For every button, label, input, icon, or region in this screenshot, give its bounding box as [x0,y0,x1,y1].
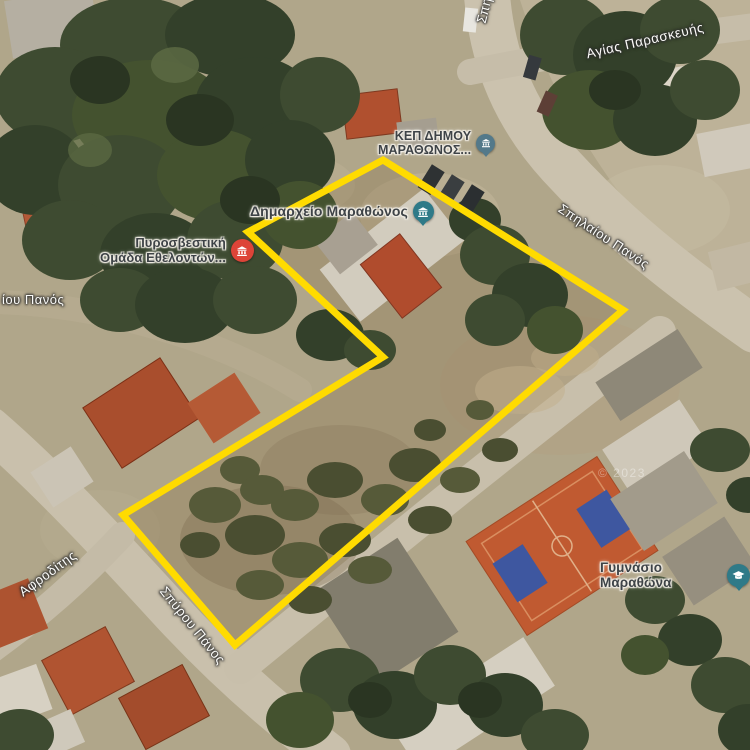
imagery-copyright-watermark: © 2023 [598,466,646,480]
poi-pyrosvestiki-omada[interactable]: Πυροσβεστική Ομάδα Εθελοντών... [100,236,254,265]
satellite-imagery [0,0,750,750]
building-glyph [236,245,248,257]
town-hall-icon[interactable] [413,201,434,222]
poi-kep-label-line1: ΚΕΠ ΔΗΜΟΥ [378,129,471,143]
graduation-cap-glyph [732,569,745,582]
building-glyph [481,138,491,148]
poi-gymnasio-marathona[interactable]: Γυμνάσιο Μαραθώνα [600,560,750,590]
poi-dimarxeio-label: Δημαρχείο Μαραθώνος [250,204,408,220]
poi-dimarxeio-marathonos[interactable]: Δημαρχείο Μαραθώνος [250,201,434,222]
school-icon[interactable] [727,564,750,587]
fire-station-icon[interactable] [231,239,254,262]
government-office-icon[interactable] [476,134,495,153]
poi-gym-label: Γυμνάσιο Μαραθώνα [600,560,722,590]
poi-kep-dimou-marathonos[interactable]: ΚΕΠ ΔΗΜΟΥ ΜΑΡΑΘΩΝΟΣ... [378,129,495,157]
building-glyph [417,206,429,218]
street-label-iou-panos: ίου Πανός [2,292,64,307]
poi-fire-label-line2: Ομάδα Εθελοντών... [100,251,226,266]
poi-kep-label-line2: ΜΑΡΑΘΩΝΟΣ... [378,143,471,157]
satellite-map[interactable]: Αγίας Παρασκευής Σπηλαίου Σπηλαίου Πανός… [0,0,750,750]
poi-fire-label-line1: Πυροσβεστική [100,236,226,251]
